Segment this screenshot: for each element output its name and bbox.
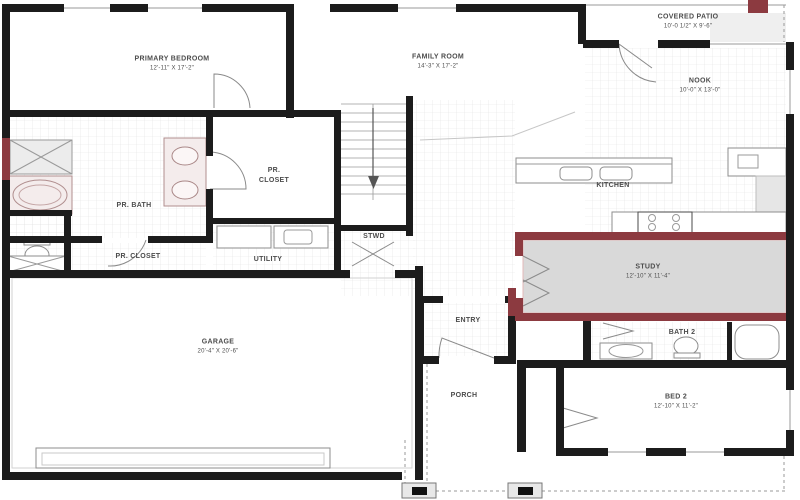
label-study: STUDY 12'-10" X 11'-4" xyxy=(626,263,670,282)
room-name: STWD xyxy=(363,233,385,240)
label-nook: NOOK 10'-0" X 13'-0" xyxy=(680,77,721,96)
room-dims: 12'-10" X 11'-2" xyxy=(654,403,698,412)
room-dims: 12'-10" X 11'-4" xyxy=(626,273,670,282)
room-name: GARAGE xyxy=(202,339,235,346)
label-family-room: FAMILY ROOM 14'-3" X 17'-2" xyxy=(412,53,464,72)
cooktop-icon xyxy=(638,212,692,233)
room-name: KITCHEN xyxy=(596,182,629,189)
room-name: PR. CLOSET xyxy=(259,167,289,184)
label-utility: UTILITY xyxy=(254,255,283,265)
room-name: UTILITY xyxy=(254,256,283,263)
garage-outline xyxy=(12,278,412,468)
label-bed-2: BED 2 12'-10" X 11'-2" xyxy=(654,393,698,412)
room-name: PORCH xyxy=(451,392,478,399)
porch-column-left xyxy=(402,483,436,498)
label-garage: GARAGE 20'-4" X 20'-6" xyxy=(198,338,239,357)
room-dims: 10'-0" X 13'-0" xyxy=(680,87,721,96)
floor-plan: PRIMARY BEDROOM 12'-11" X 17'-2" FAMILY … xyxy=(0,0,800,500)
label-pr-closet-front: PR. CLOSET xyxy=(115,252,160,262)
bath2-vanity-icon xyxy=(600,343,652,359)
window xyxy=(786,70,794,114)
bedroom-door xyxy=(214,74,250,108)
room-dims: 10'-0 1/2" X 9'-6" xyxy=(658,23,719,32)
shower-icon xyxy=(10,140,72,174)
floor-plan-drawing xyxy=(0,0,800,500)
room-dims: 14'-3" X 17'-2" xyxy=(412,63,464,72)
study-bottom-wall xyxy=(515,313,786,321)
room-name: BED 2 xyxy=(665,394,687,401)
room-name: COVERED PATIO xyxy=(658,14,719,21)
room-dims: 20'-4" X 20'-6" xyxy=(198,348,239,357)
study-top-wall xyxy=(515,232,786,240)
label-stwd: STWD xyxy=(363,232,385,242)
room-name: PR. BATH xyxy=(117,202,152,209)
label-covered-patio: COVERED PATIO 10'-0 1/2" X 9'-6" xyxy=(658,13,719,32)
bathtub-icon xyxy=(8,176,72,214)
bath2-tub-icon xyxy=(735,325,779,359)
porch-edges xyxy=(405,364,786,491)
window xyxy=(686,448,724,456)
double-vanity-icon xyxy=(164,138,206,206)
label-primary-bedroom: PRIMARY BEDROOM 12'-11" X 17'-2" xyxy=(135,55,210,74)
room-name: PR. CLOSET xyxy=(115,253,160,260)
window xyxy=(148,4,202,12)
island-sink-right xyxy=(600,167,632,180)
bed2-closet-bifold xyxy=(563,408,597,428)
room-name: NOOK xyxy=(689,78,711,85)
closet-main-door xyxy=(210,152,246,189)
label-pr-closet-main: PR. CLOSET xyxy=(256,166,292,186)
window xyxy=(608,448,646,456)
room-name: ENTRY xyxy=(456,317,481,324)
linen-closet-icon xyxy=(8,256,66,272)
window xyxy=(786,390,794,430)
island-sink-left xyxy=(560,167,592,180)
room-name: FAMILY ROOM xyxy=(412,54,464,61)
label-pr-bath: PR. BATH xyxy=(117,201,152,211)
room-name: BATH 2 xyxy=(669,329,696,336)
label-porch: PORCH xyxy=(451,391,478,401)
room-dims: 12'-11" X 17'-2" xyxy=(135,65,210,74)
stairs xyxy=(341,104,406,200)
room-name: PRIMARY BEDROOM xyxy=(135,56,210,63)
window xyxy=(398,4,456,12)
kitchen-island xyxy=(516,158,672,183)
porch-column-right xyxy=(508,483,542,498)
room-name: STUDY xyxy=(635,264,660,271)
window xyxy=(64,4,110,12)
label-bath-2: BATH 2 xyxy=(669,328,696,338)
label-kitchen: KITCHEN xyxy=(596,181,629,191)
label-entry: ENTRY xyxy=(456,316,481,326)
